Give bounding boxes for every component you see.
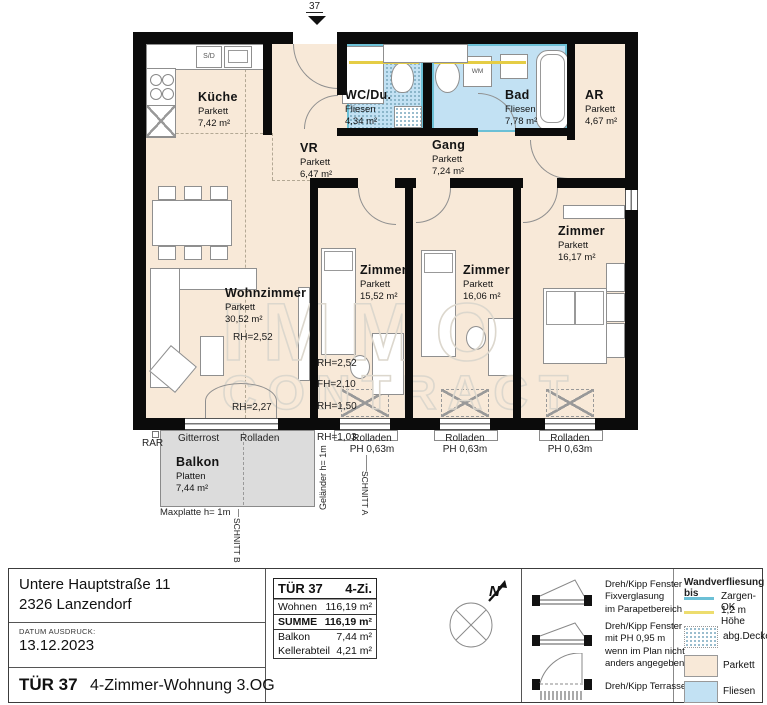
chair [158,246,176,260]
wall-segment [133,418,185,430]
annotation-rh: RH=1,50 [317,401,357,412]
room-label-gang: Gang Parkett 7,24 m² [432,138,465,177]
rar-symbol [152,431,159,438]
wall-segment [390,418,440,430]
wall-segment [337,178,358,188]
swatch-fliesen-label: Fliesen [723,686,755,697]
chair [184,186,202,200]
bed [421,250,456,357]
wall-segment [595,418,638,430]
wall-segment [567,44,575,140]
stove-burner [150,74,162,86]
tiling-yellow-label: 1,2 m Höhe [721,605,762,627]
section-line-a [366,455,367,471]
unit-title: TÜR 37 4-Zimmer-Wohnung 3.OG [19,675,275,695]
annotation-rolladen-ph: Rolladen PH 0,63m [433,433,497,455]
double-bed [543,288,607,364]
room-label-zimmer2: Zimmer Parkett 16,06 m² [463,263,510,302]
chair [210,186,228,200]
washbasin [435,60,460,93]
floorplan-sheet: 37 IMMO CONTRACT [0,0,767,705]
wardrobe [606,323,625,358]
wall-segment [625,210,638,430]
swatch-abgdecke [684,626,718,648]
table-row: SUMME116,19 m² [274,614,376,630]
vr-boundary-dashed [272,133,273,180]
compass-icon: N [441,579,513,651]
desk [372,333,404,395]
unit-description: 4-Zimmer-Wohnung 3.OG [90,677,275,694]
legend-symbol-fix-window [531,577,593,614]
legend-text-window: Dreh/Kipp Fenster mit PH 0,95 m wenn im … [605,621,685,670]
room-label-bad: Bad Fliesen 7,78 m² [505,88,537,127]
wall-segment [133,32,146,430]
area-table-header: TÜR 37 4-Zi. [273,578,377,599]
divider [9,667,265,668]
legend-symbol-terrace-door [531,653,593,705]
window [440,418,490,430]
print-date-value: 13.12.2023 [19,637,94,654]
room-label-balkon: Balkon Platten 7,44 m² [176,455,219,494]
room-label-ar: AR Parkett 4,67 m² [585,88,617,127]
bathtub [536,50,569,131]
wall-segment [337,32,638,44]
wall-segment [625,32,638,190]
stove-burner [162,74,174,86]
swatch-parkett [684,655,718,677]
wall-segment [515,128,575,136]
washbasin [394,106,422,128]
wall-segment [278,418,340,430]
annotation-gitterrost: Gitterrost [178,433,219,444]
table-row: Balkon7,44 m² [274,630,376,644]
table-row: Wohnen116,19 m² [274,599,376,614]
annotation-rar: RAR [142,438,163,449]
print-date-label: DATUM AUSDRUCK: [19,627,95,636]
wall-niche [383,44,468,63]
wardrobe [606,293,625,322]
annotation-rolladen-ph: Rolladen PH 0,63m [538,433,602,455]
stove-burner [162,88,174,100]
address-line1: Untere Hauptstraße 11 [19,575,170,595]
room-label-wc: WC/Du. Fliesen 4,34 m² [345,88,391,127]
wall-segment [405,188,413,418]
axis-dashed-line [245,44,246,418]
dishwasher: S/D [196,46,222,68]
wall-segment [133,32,293,44]
north-compass: N [441,579,513,651]
window-openswing-symbol [546,389,594,417]
room-label-kueche: Küche Parkett 7,42 m² [198,90,238,129]
wall-segment [337,128,478,136]
chair [210,246,228,260]
chair [184,246,202,260]
chair [466,326,486,350]
window [625,190,638,210]
stove-burner [150,88,162,100]
balcony-door-window [185,418,278,430]
balcony-door-swing [205,383,277,419]
wall-segment [263,44,272,135]
section-line-b [238,509,239,517]
annotation-gelaender: Geländer h= 1m [318,446,328,510]
wall-segment [490,418,545,430]
window [545,418,595,430]
annotation-rolladen: Rolladen [240,433,279,444]
window-openswing-symbol [441,389,489,417]
table-row: Kellerabteil4,21 m² [274,644,376,658]
room-label-zimmer3: Zimmer Parkett 16,17 m² [558,224,605,263]
kitchen-sink [224,46,252,68]
unit-door-label: TÜR 37 [19,675,78,694]
wall-segment [450,178,523,188]
entrance-door-number: 37 [306,1,323,13]
room-label-zimmer1: Zimmer Parkett 15,52 m² [360,263,407,302]
yellow-line-swatch [684,611,714,614]
entrance-arrow-icon [308,16,326,25]
desk [488,318,516,376]
washbasin [500,54,528,79]
room-label-wohnzimmer: Wohnzimmer Parkett 30,52 m² [225,286,306,325]
fridge [146,105,176,137]
chair [158,186,176,200]
divider [9,622,265,623]
legend-symbol-window [531,621,593,654]
wall-segment [513,188,521,418]
annotation-fh: FH=2,10 [317,379,356,390]
annotation-schnitt-a: SCHNITT A [360,471,370,531]
toilet [391,62,414,93]
wall-segment [557,178,638,188]
shelf [563,205,625,219]
annotation-rh: RH=2,52 [317,358,357,369]
annotation-rh: RH=2,52 [233,332,273,343]
address-block: Untere Hauptstraße 11 2326 Lanzendorf [19,575,170,616]
title-block: Untere Hauptstraße 11 2326 Lanzendorf DA… [8,568,763,703]
address-line2: 2326 Lanzendorf [19,595,170,615]
annotation-maxplatte: Maxplatte h= 1m [160,507,231,518]
annotation-rolladen-ph: Rolladen PH 0,63m [340,433,404,455]
swatch-fliesen [684,681,718,703]
swatch-abgdecke-label: abg.Decke [723,631,767,642]
room-label-vr: VR Parkett 6,47 m² [300,141,332,180]
area-table: TÜR 37 4-Zi. Wohnen116,19 m² SUMME116,19… [273,578,377,659]
wall-segment [395,178,416,188]
bed [321,248,356,355]
footer-divider [521,569,522,702]
window [340,418,390,430]
swatch-parkett-label: Parkett [723,660,755,671]
coffee-table [200,336,224,376]
north-label: N [489,583,501,600]
dining-table [152,200,232,246]
wardrobe [606,263,625,292]
annotation-rh: RH=2,27 [232,402,272,413]
legend-text-fix-window: Dreh/Kipp Fenster Fixverglasung im Parap… [605,579,682,616]
cyan-line-swatch [684,597,714,600]
